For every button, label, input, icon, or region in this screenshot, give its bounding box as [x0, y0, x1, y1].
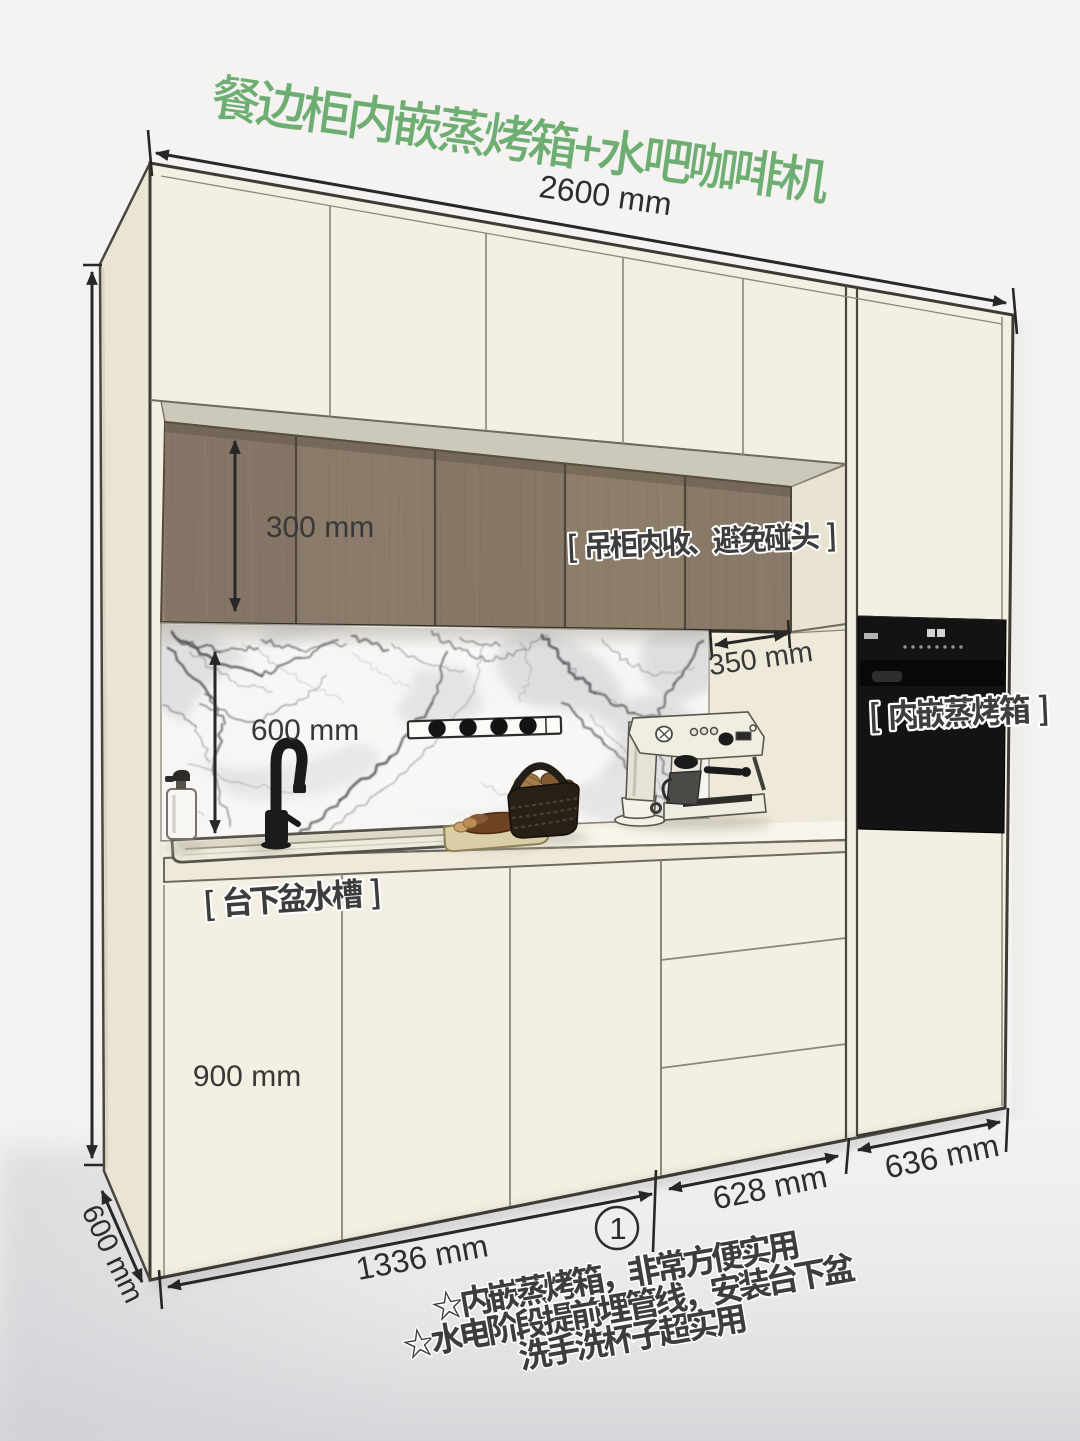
- svg-text:900 mm: 900 mm: [193, 1060, 301, 1093]
- svg-text:300 mm: 300 mm: [266, 511, 374, 544]
- svg-text:600 mm: 600 mm: [251, 714, 359, 747]
- svg-text:1: 1: [609, 1211, 626, 1246]
